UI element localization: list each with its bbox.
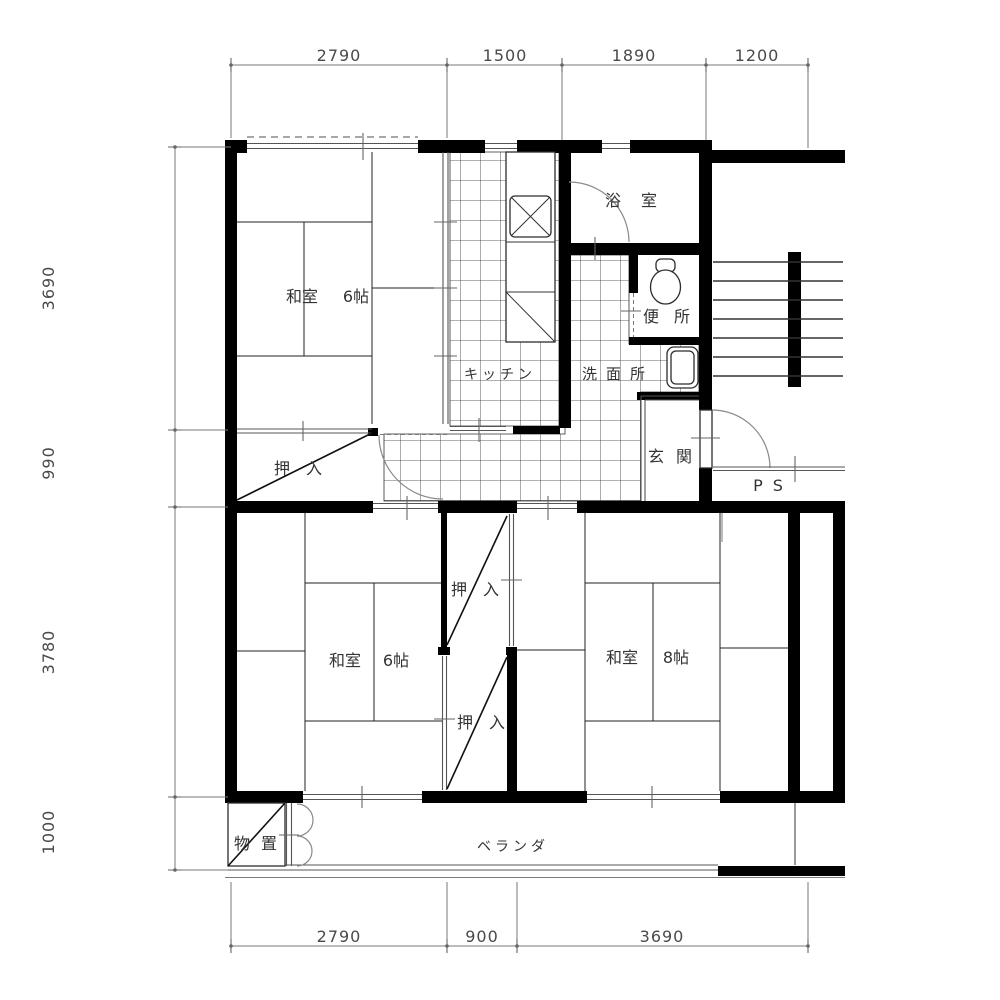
dim-bottom-1: 2790 <box>317 927 362 946</box>
label-washitsu-upper-name: 和室 <box>286 287 318 306</box>
dimension-left: 3690 990 3780 1000 <box>39 145 231 872</box>
wall-closet-mid-left <box>441 513 447 647</box>
dim-left-3: 3780 <box>39 630 58 675</box>
wall-toilet-bottom <box>629 337 706 345</box>
wall-middle-1 <box>225 501 373 513</box>
wall-bottom-1 <box>225 791 303 803</box>
entrance-door-arc <box>712 410 770 468</box>
counter-outline <box>506 152 555 342</box>
storage-bifold-door-arcs <box>297 804 313 866</box>
window-kitchen <box>485 144 517 149</box>
dim-bottom-3: 3690 <box>640 927 685 946</box>
label-pipe-space: PS <box>753 476 793 495</box>
dim-left-1: 3690 <box>39 266 58 311</box>
opening-hall-to-lower-right <box>517 504 577 509</box>
wall-toilet-left <box>629 248 638 293</box>
label-washitsu-lower-right-name: 和室 <box>606 648 638 667</box>
kitchen-hall-boundary <box>450 427 506 431</box>
label-kitchen: キッチン <box>464 367 536 383</box>
washbasin-inner <box>671 351 694 384</box>
label-washitsu-lower-left-name: 和室 <box>329 651 361 670</box>
toilet-bowl-icon <box>651 270 681 304</box>
floor-plan: 2790 1500 1890 1200 3690 990 3780 1000 2… <box>0 0 1000 1000</box>
wall-top-right <box>706 150 845 163</box>
tatami-lower-right-8mat <box>517 513 788 791</box>
dim-top-2: 1500 <box>483 46 528 65</box>
wall-middle-2 <box>438 501 517 513</box>
label-washitsu-lower-right-size: 8帖 <box>663 648 689 667</box>
floor-plan-drawing: 2790 1500 1890 1200 3690 990 3780 1000 2… <box>0 0 1000 1000</box>
label-washitsu-upper-size: 6帖 <box>343 287 369 306</box>
toilet-fixture <box>651 259 681 304</box>
wall-right-upper <box>699 140 712 410</box>
wall-stub-hall <box>513 426 560 434</box>
kitchen-counter <box>506 152 555 342</box>
ps-boundary-line <box>713 467 845 471</box>
dim-top-3: 1890 <box>612 46 657 65</box>
dim-top-4: 1200 <box>735 46 780 65</box>
wall-middle-3 <box>577 501 845 513</box>
label-veranda: ベランダ <box>477 839 549 855</box>
dimension-bottom: 2790 900 3690 <box>229 882 810 953</box>
opening-hall-to-lower-left <box>373 504 438 509</box>
wall-bottom-2 <box>422 791 587 803</box>
wall-outer-right-lower <box>833 513 845 802</box>
label-closet-upper: 押入 <box>274 459 338 478</box>
wall-top-2 <box>418 140 485 153</box>
label-entrance: 玄関 <box>648 447 704 466</box>
label-toilet: 便所 <box>643 307 705 326</box>
fusuma-closet-mid-lower <box>443 656 447 790</box>
label-washitsu-lower-left-size: 6帖 <box>383 651 409 670</box>
veranda-door-right-room <box>587 795 720 800</box>
stairwell <box>713 262 843 376</box>
veranda-bottom-bar <box>718 866 845 876</box>
stair-treads <box>713 262 843 376</box>
label-washroom: 洗面所 <box>582 365 654 383</box>
dim-bottom-2: 900 <box>465 927 499 946</box>
dim-left-4: 1000 <box>39 810 58 855</box>
dim-top-1: 2790 <box>317 46 362 65</box>
entrance-area <box>641 396 845 542</box>
wall-bottom-3 <box>720 791 845 803</box>
closet-top-front <box>237 429 372 433</box>
dim-left-2: 990 <box>39 446 58 480</box>
wall-post-closet-mid-2 <box>506 647 517 655</box>
label-storage: 物置 <box>234 834 288 853</box>
tatami-upper-6mat <box>237 152 442 424</box>
wall-kitchen-bath <box>559 140 571 428</box>
wall-post-closet-mid-1 <box>438 647 450 655</box>
washbasin-fixture <box>667 347 698 388</box>
window-bath <box>602 144 630 149</box>
label-bath: 浴室 <box>605 191 677 210</box>
wall-left <box>225 140 237 803</box>
label-closet-mid-upper: 押入 <box>451 580 515 599</box>
wall-washitsu8-right <box>788 510 800 803</box>
dimension-top: 2790 1500 1890 1200 <box>229 46 810 148</box>
window-upper-room <box>247 144 418 149</box>
label-closet-mid-lower: 押入 <box>457 713 521 732</box>
